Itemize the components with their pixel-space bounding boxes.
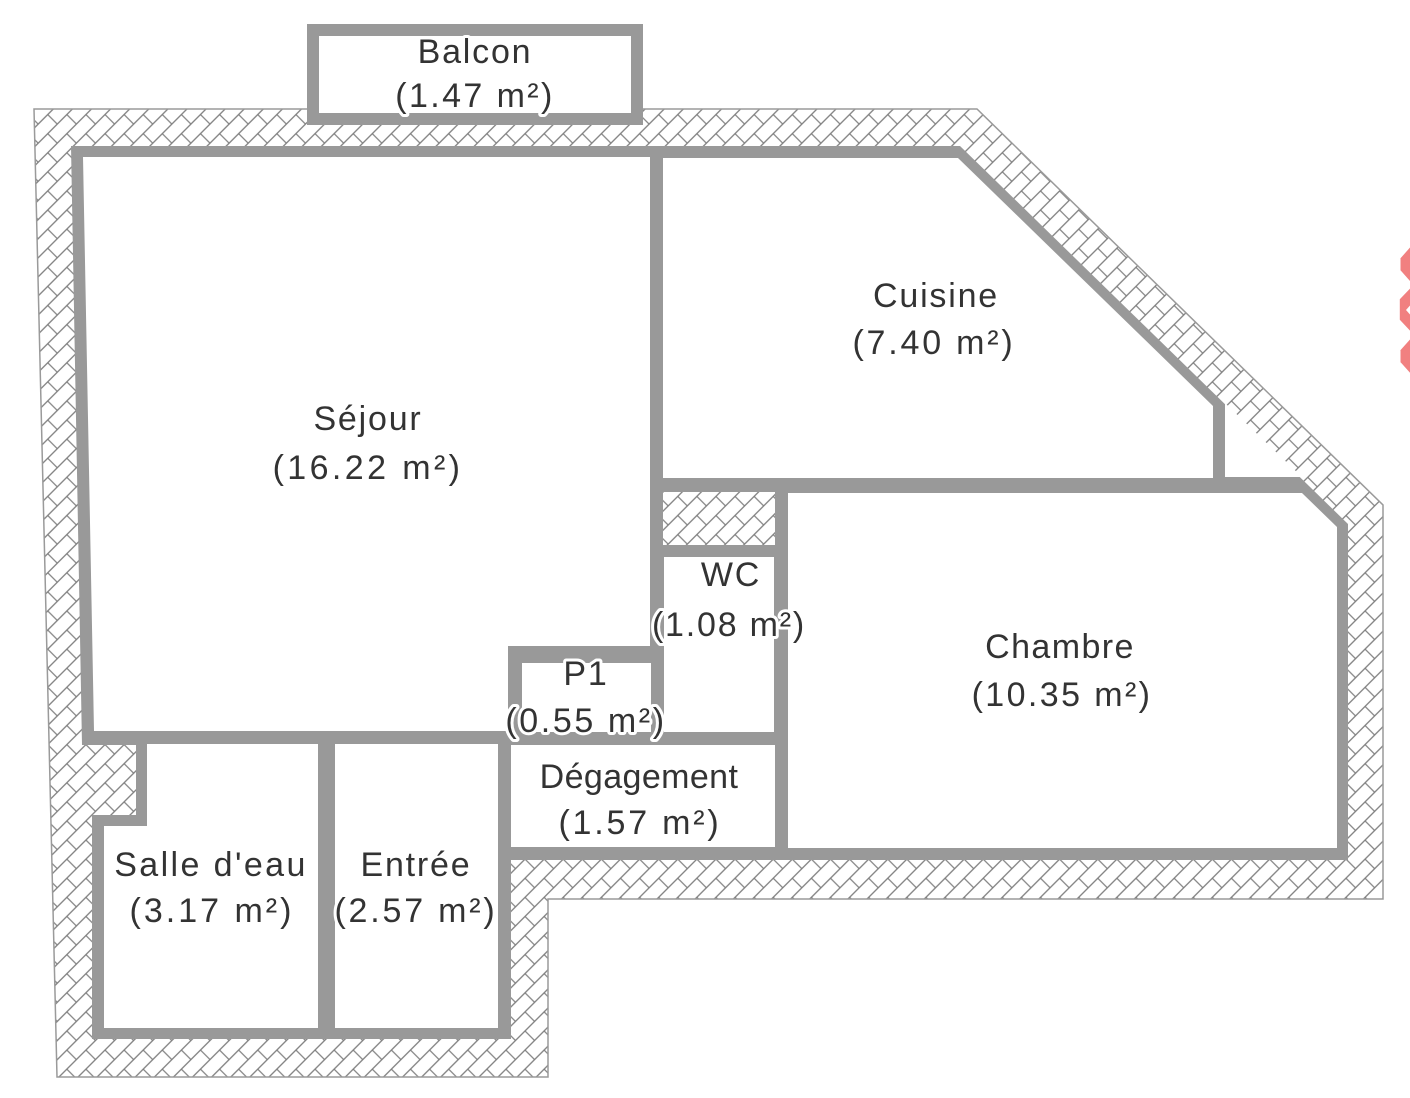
- svg-text:(1.47 m²): (1.47 m²): [395, 77, 555, 115]
- svg-text:(1.57 m²): (1.57 m²): [558, 804, 721, 842]
- svg-text:Séjour: Séjour: [313, 400, 422, 438]
- svg-text:(2.57 m²): (2.57 m²): [334, 892, 497, 930]
- svg-text:(16.22 m²): (16.22 m²): [273, 449, 464, 487]
- svg-text:Balcon: Balcon: [418, 33, 533, 71]
- svg-text:(7.40 m²): (7.40 m²): [852, 324, 1015, 362]
- svg-text:Chambre: Chambre: [985, 628, 1135, 666]
- svg-text:(1.08 m²): (1.08 m²): [652, 606, 806, 644]
- svg-text:P1: P1: [563, 655, 608, 693]
- svg-text:Entrée: Entrée: [361, 846, 472, 884]
- svg-text:(10.35 m²): (10.35 m²): [972, 676, 1153, 714]
- svg-text:WC: WC: [701, 556, 761, 594]
- svg-text:Salle d'eau: Salle d'eau: [114, 846, 308, 884]
- svg-text:(0.55 m²): (0.55 m²): [505, 702, 666, 740]
- svg-text:(3.17 m²): (3.17 m²): [130, 892, 295, 930]
- svg-text:Cuisine: Cuisine: [873, 277, 999, 315]
- svg-text:Dégagement: Dégagement: [540, 758, 739, 796]
